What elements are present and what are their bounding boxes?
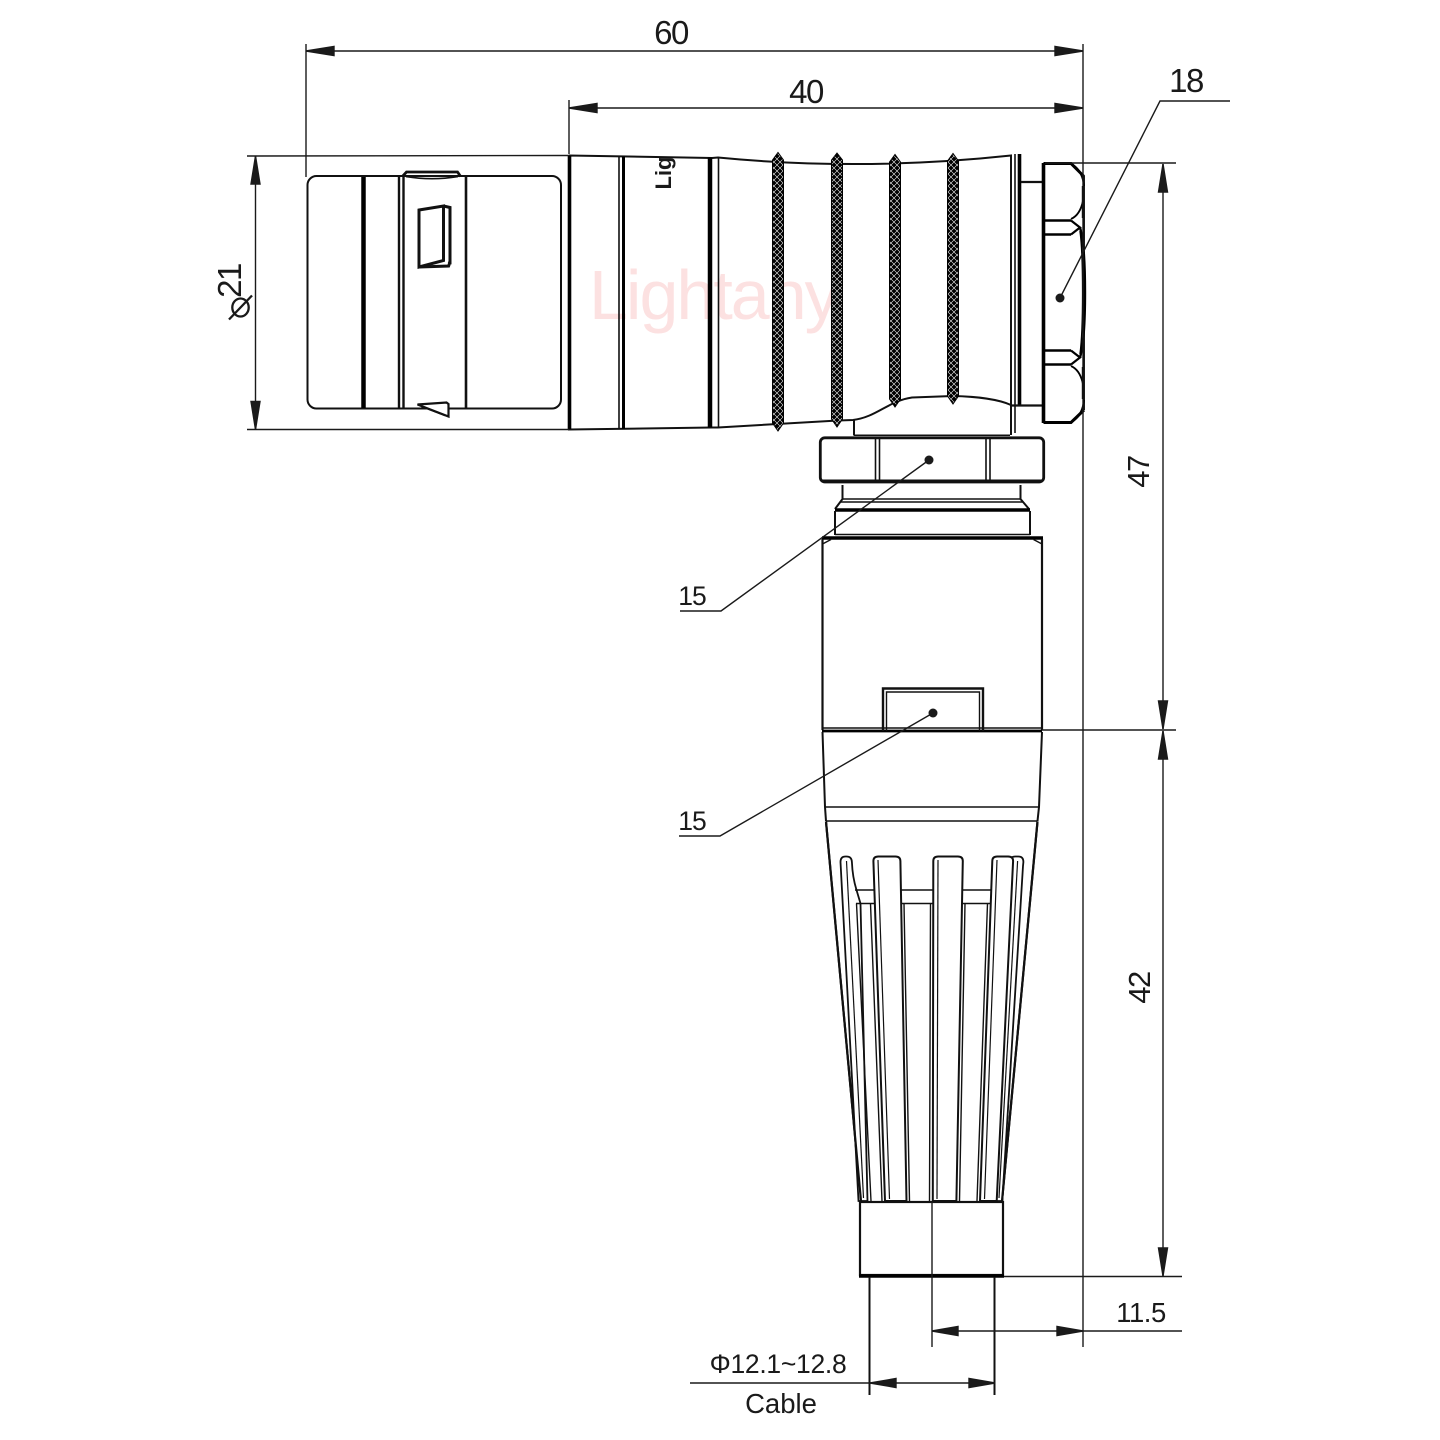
svg-text:42: 42 xyxy=(1122,972,1157,1004)
svg-text:18: 18 xyxy=(1169,62,1203,99)
svg-text:21: 21 xyxy=(211,264,248,298)
svg-text:Φ12.1~12.8: Φ12.1~12.8 xyxy=(710,1349,847,1379)
svg-text:15: 15 xyxy=(678,581,706,611)
svg-text:47: 47 xyxy=(1121,456,1156,488)
svg-text:60: 60 xyxy=(654,14,689,51)
svg-text:40: 40 xyxy=(789,73,824,110)
svg-text:11.5: 11.5 xyxy=(1116,1297,1166,1328)
svg-text:Cable: Cable xyxy=(745,1388,817,1419)
svg-text:15: 15 xyxy=(678,806,706,836)
svg-text:Lig: Lig xyxy=(651,157,676,190)
svg-text:Lightany: Lightany xyxy=(589,256,840,334)
